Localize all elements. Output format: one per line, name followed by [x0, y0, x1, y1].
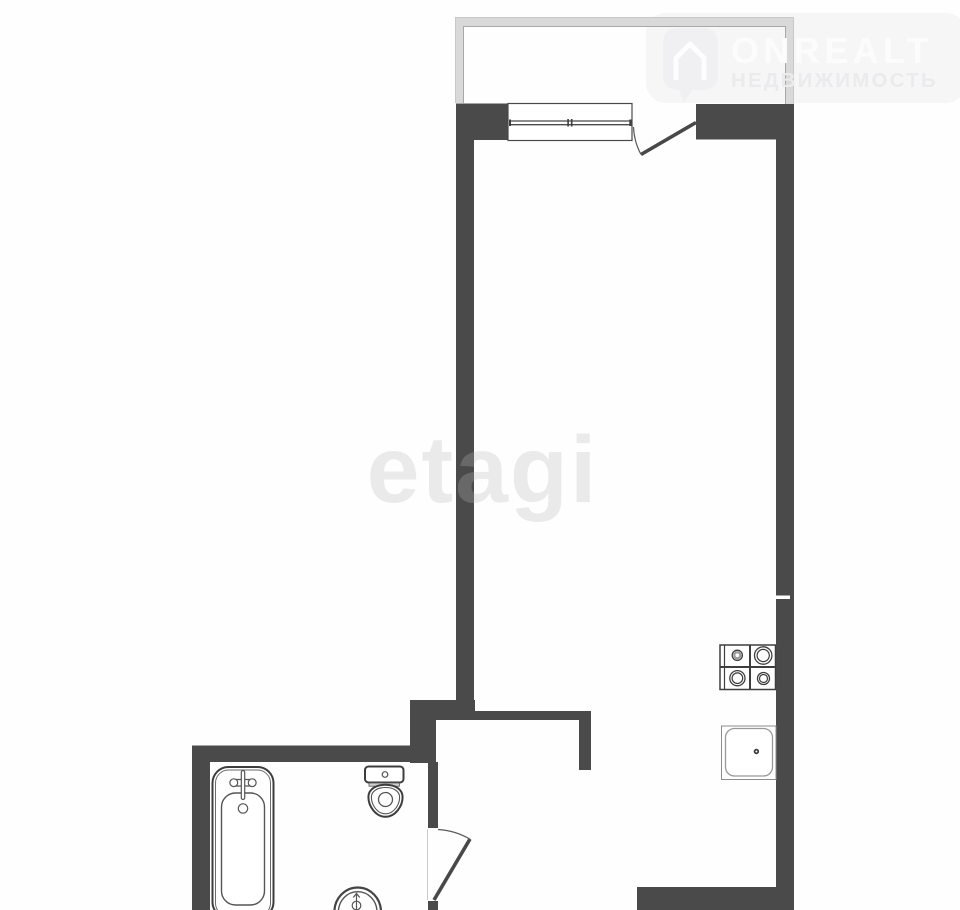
- svg-text:НЕДВИЖИМОСТЬ: НЕДВИЖИМОСТЬ: [731, 69, 938, 92]
- svg-text:ONREALT: ONREALT: [731, 30, 933, 71]
- svg-text:etagi: etagi: [367, 417, 599, 523]
